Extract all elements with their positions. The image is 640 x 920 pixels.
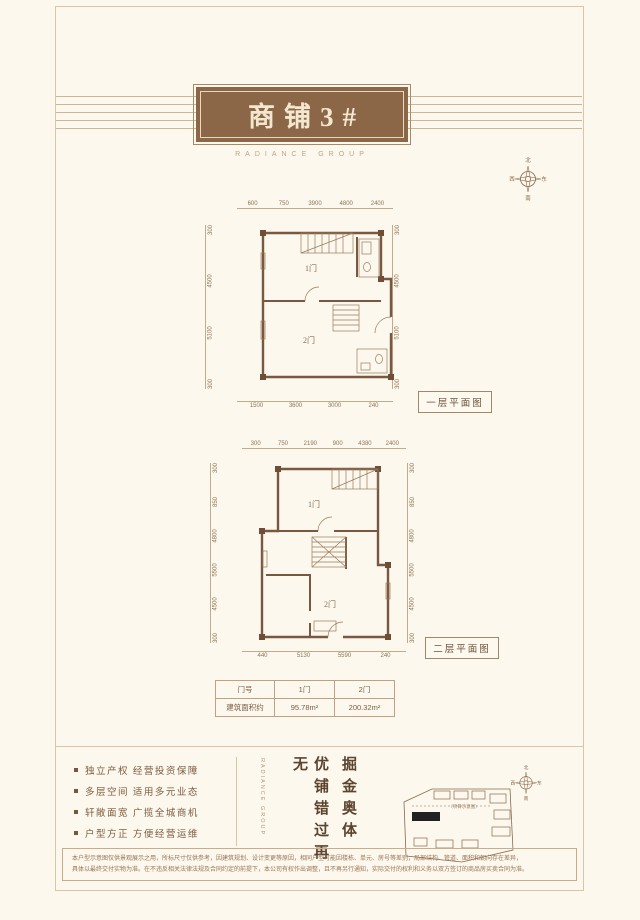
feature-text: 户型方正 方便经营运维 [85,826,199,840]
compass-north-label: 北 [525,156,531,164]
dim-value: 1500 [237,402,276,410]
dim-value: 3900 [299,200,330,208]
dim-value: 4800 [408,529,418,542]
dim-value: 300 [206,225,216,235]
dim-value: 4380 [351,440,378,448]
compass-east-label: 东 [541,175,547,183]
feature-item: 多层空间 适用多元业态 [74,780,199,801]
plan2-caption: 二层平面图 [425,637,499,659]
dim-value: 5130 [283,652,324,660]
dim-value: 300 [211,633,221,643]
plan2-dims-top: 300750219090043802400 [242,439,406,449]
title-banner: 商铺3# [196,87,408,142]
bullet-square-icon [74,810,78,814]
feature-text: 多层空间 适用多元业态 [85,784,199,798]
dim-value: 4800 [331,200,362,208]
plan1-dims-top: 600750390048002400 [237,199,393,209]
brand-subtitle: RADIANCE GROUP [196,151,408,158]
plan2-dims-right: 300850480055004500300 [407,463,418,643]
compass-rose: 北 南 西 东 [508,155,548,201]
plan1-caption: 一层平面图 [418,391,492,413]
floor-plan-1-drawing: 1门 2门 [247,221,397,389]
disclaimer-line2: 具体以最终交付实物为准。在不违反相关法律法规及合同约定的前提下，本公司有权作出调… [72,865,567,876]
bullet-square-icon [74,789,78,793]
compass-rose: 北 南 西 东 [509,763,543,801]
feature-item: 独立产权 经营投资保障 [74,759,199,780]
dim-value: 440 [242,652,283,660]
bullet-square-icon [74,768,78,772]
dim-value: 240 [354,402,393,410]
dim-value: 240 [365,652,406,660]
dim-value: 4500 [211,597,221,610]
compass-west-label: 西 [511,780,516,786]
site-plan-note: （项目示意图） [448,803,480,810]
dim-value: 300 [211,463,221,473]
table-cell: 门号 [216,681,274,698]
table-cell: 200.32m² [334,698,394,716]
compass-west-label: 西 [509,176,515,183]
page-title: 商铺3# [239,95,365,134]
plan2-room2-label: 2门 [324,599,336,609]
brand-vertical-text: RADIANCE GROUP [259,758,265,860]
dim-value: 2400 [362,200,393,208]
footer-separator [55,746,583,747]
dim-value: 300 [408,463,418,473]
compass-east-label: 东 [537,779,542,785]
dim-value: 5100 [206,326,216,339]
table-cell: 1门 [274,681,334,698]
dim-value: 4500 [206,275,216,288]
dim-value: 3600 [276,402,315,410]
brochure-page: 商铺3# RADIANCE GROUP 北 南 西 东 600750390048… [0,0,640,920]
plan2-dims-left: 300850480055004500300 [210,463,221,643]
plan1-room1-label: 1门 [305,263,317,273]
dim-value: 3000 [315,402,354,410]
plan2-room1-label: 1门 [308,499,320,509]
dim-value: 750 [268,200,299,208]
dim-value: 2190 [297,440,324,448]
compass-south-label: 南 [524,795,529,801]
dim-value: 5590 [324,652,365,660]
vertical-divider [236,757,237,846]
dim-value: 5500 [408,563,418,576]
feature-item: 户型方正 方便经营运维 [74,822,199,843]
disclaimer-line1: 本户型示意图仅供景观展示之用，所标尺寸仅供参考，因建筑规划、设计变更等原因，相同… [72,854,567,865]
dim-value: 300 [242,440,269,448]
compass-south-label: 南 [525,194,531,201]
feature-text: 独立产权 经营投资保障 [85,763,199,777]
plan1-room2-label: 2门 [303,335,315,345]
feature-list: 独立产权 经营投资保障 多层空间 适用多元业态 轩敞面宽 广揽全城商机 户型方正… [74,759,199,843]
plan2-dims-bottom: 44051305590240 [242,651,406,661]
floor-plan-1-block: 600750390048002400 30045005100300 300450… [203,197,405,413]
dim-value: 4800 [211,529,221,542]
table-cell: 95.78m² [274,698,334,716]
table-cell: 2门 [334,681,394,698]
dim-value: 600 [237,200,268,208]
bullet-square-icon [74,831,78,835]
dim-value: 850 [408,497,418,507]
feature-item: 轩敞面宽 广揽全城商机 [74,801,199,822]
dim-value: 2400 [379,440,406,448]
plan1-dims-left: 30045005100300 [205,225,216,389]
compass-north-label: 北 [524,764,529,771]
table-cell: 建筑面积约 [216,698,274,716]
dim-value: 850 [211,497,221,507]
highlighted-building [412,812,440,821]
dim-value: 300 [408,633,418,643]
area-table: 门号 1门 2门 建筑面积约 95.78m² 200.32m² [215,680,395,717]
disclaimer-box: 本户型示意图仅供景观展示之用，所标尺寸仅供参考，因建筑规划、设计变更等原因，相同… [62,848,577,881]
dim-value: 4500 [408,597,418,610]
feature-text: 轩敞面宽 广揽全城商机 [85,805,199,819]
dim-value: 300 [206,379,216,389]
dim-value: 750 [269,440,296,448]
plan1-dims-bottom: 150036003000240 [237,401,393,411]
dim-value: 900 [324,440,351,448]
floor-plan-2-drawing: 1门 2门 [248,461,398,641]
floor-plan-2-block: 300750219090043802400 300850480055004500… [208,437,420,663]
dim-value: 5500 [211,563,221,576]
